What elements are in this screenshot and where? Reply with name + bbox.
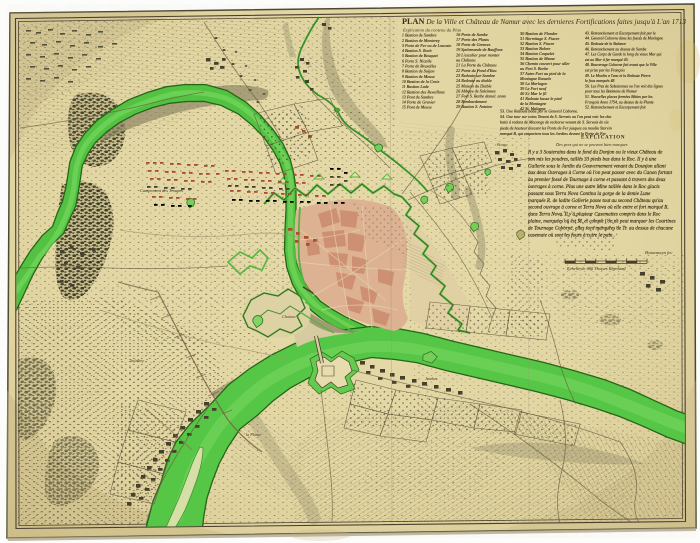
svg-text:batis à redans de Maconge de r: batis à redans de Maconge de rechorse ve… xyxy=(500,120,609,125)
svg-text:53. Une Redoute batie par le G: 53. Une Redoute batie par le General Cob… xyxy=(500,109,578,114)
svg-text:43. Retranchement et Escarpeme: 43. Retranchement et Escarpement fait pa… xyxy=(585,31,656,35)
svg-text:pour tous les Batimens de Namu: pour tous les Batimens de Namur xyxy=(584,90,637,94)
svg-text:Jambes: Jambes xyxy=(425,376,438,381)
svg-text:second ouvrage à corne et Terr: second ouvrage à corne et Terra Nova où … xyxy=(528,204,669,211)
svg-text:Campement des Troupes: Campement des Troupes xyxy=(140,188,183,193)
svg-text:casemate où sont les fours à c: casemate où sont les fours à cuire le pa… xyxy=(528,231,615,238)
svg-text:PLAN De la Ville et Château de: PLAN De la Ville et Château de Namur ave… xyxy=(402,17,687,26)
svg-text:54. Une tour sur coins Tenant: 54. Une tour sur coins Tenant de S. Serv… xyxy=(500,114,611,119)
svg-text:52. Retranchement et Escarpeme: 52. Retranchement et Escarpement fait xyxy=(585,106,647,110)
svg-text:Bouge: Bouge xyxy=(497,142,508,147)
svg-text:marquée R. de ladite Gallerie: marquée R. de ladite Gallerie passe tout… xyxy=(528,198,664,204)
svg-text:47. Les Corps de Garde le long: 47. Les Corps de Garde le long du vieux … xyxy=(585,53,661,57)
svg-text:ouvrages à corne. Plus une aut: ouvrages à corne. Plus une autre Mine ta… xyxy=(528,184,660,190)
svg-text:Gallerie sous le Jardin du Gou: Gallerie sous le Jardin du Gouvernement … xyxy=(528,163,666,169)
svg-text:51. Nouvelles places fermées B: 51. Nouvelles places fermées Bâties par … xyxy=(585,95,653,99)
svg-text:48. Bouverage Coborne fait ava: 48. Bouverage Coborne fait avant que la … xyxy=(585,63,657,67)
svg-text:Hauwmayn fec: Hauwmayn fec xyxy=(644,250,672,255)
svg-text:dans Terra Nova. Il y à plusie: dans Terra Nova. Il y à plusieur Casemat… xyxy=(528,212,661,218)
svg-text:50. Les Prez de Salesiennes ou: 50. Les Prez de Salesiennes ou l'on voit… xyxy=(585,84,663,88)
svg-text:aux deux Ouvrages à Corne où l: aux deux Ouvrages à Corne où l'on peut p… xyxy=(528,169,673,176)
svg-text:15 Pont de Meuse: 15 Pont de Meuse xyxy=(402,105,432,110)
svg-text:passant sous Terra Nova Contin: passant sous Terra Nova Contina la gorge… xyxy=(527,191,651,197)
svg-text:est au Mur à fer marqué 45.: est au Mur à fer marqué 45. xyxy=(585,58,629,62)
svg-text:Chateau: Chateau xyxy=(282,314,296,319)
svg-text:Echelle de 400 Thoises Rhynlan: Echelle de 400 Thoises Rhynland xyxy=(566,266,626,271)
svg-text:le fous marqués 48.: le fous marqués 48. xyxy=(585,79,615,83)
svg-text:au premier fossé de Tournage à: au premier fossé de Tournage à corne et … xyxy=(528,176,666,183)
svg-text:pieds de hauteur descent les P: pieds de hauteur descent les Ponts de Fe… xyxy=(499,125,612,130)
svg-text:44. General Coborne dans les f: 44. General Coborne dans les fossés de M… xyxy=(585,37,663,41)
svg-text:son mis les poudres, taillés 3: son mis les poudres, taillés 33 pieds ba… xyxy=(528,156,657,162)
svg-text:46. Retranchement au dessus de: 46. Retranchement au dessus de Sambe xyxy=(585,47,647,51)
svg-text:49. Le Moulin a l'eau et la Re: 49. Le Moulin a l'eau et la Redoute Pier… xyxy=(585,74,651,78)
svg-text:Il y a 3 Souterains dans le fo: Il y a 3 Souterains dans le fond du Donj… xyxy=(527,149,663,156)
svg-text:plaine, marquées où est M. et: plaine, marquées où est M. et comme l'on… xyxy=(527,219,676,225)
svg-text:Salzinne: Salzinne xyxy=(130,358,144,363)
svg-text:29 Bastion S. Antoine: 29 Bastion S. Antoine xyxy=(456,104,492,109)
svg-text:de Tournage Coborne, elles son: de Tournage Coborne, elles sont marquées… xyxy=(528,225,674,231)
svg-text:est prise par les François: est prise par les François xyxy=(585,69,625,73)
svg-text:45. Redoute de la Balance: 45. Redoute de la Balance xyxy=(585,42,626,46)
svg-text:EXPLICATION: EXPLICATION xyxy=(581,135,625,141)
svg-text:Des prez qui ne se peuvent bie: Des prez qui ne se peuvent bien marquer. xyxy=(555,142,628,147)
svg-text:la Plante: la Plante xyxy=(246,432,261,437)
